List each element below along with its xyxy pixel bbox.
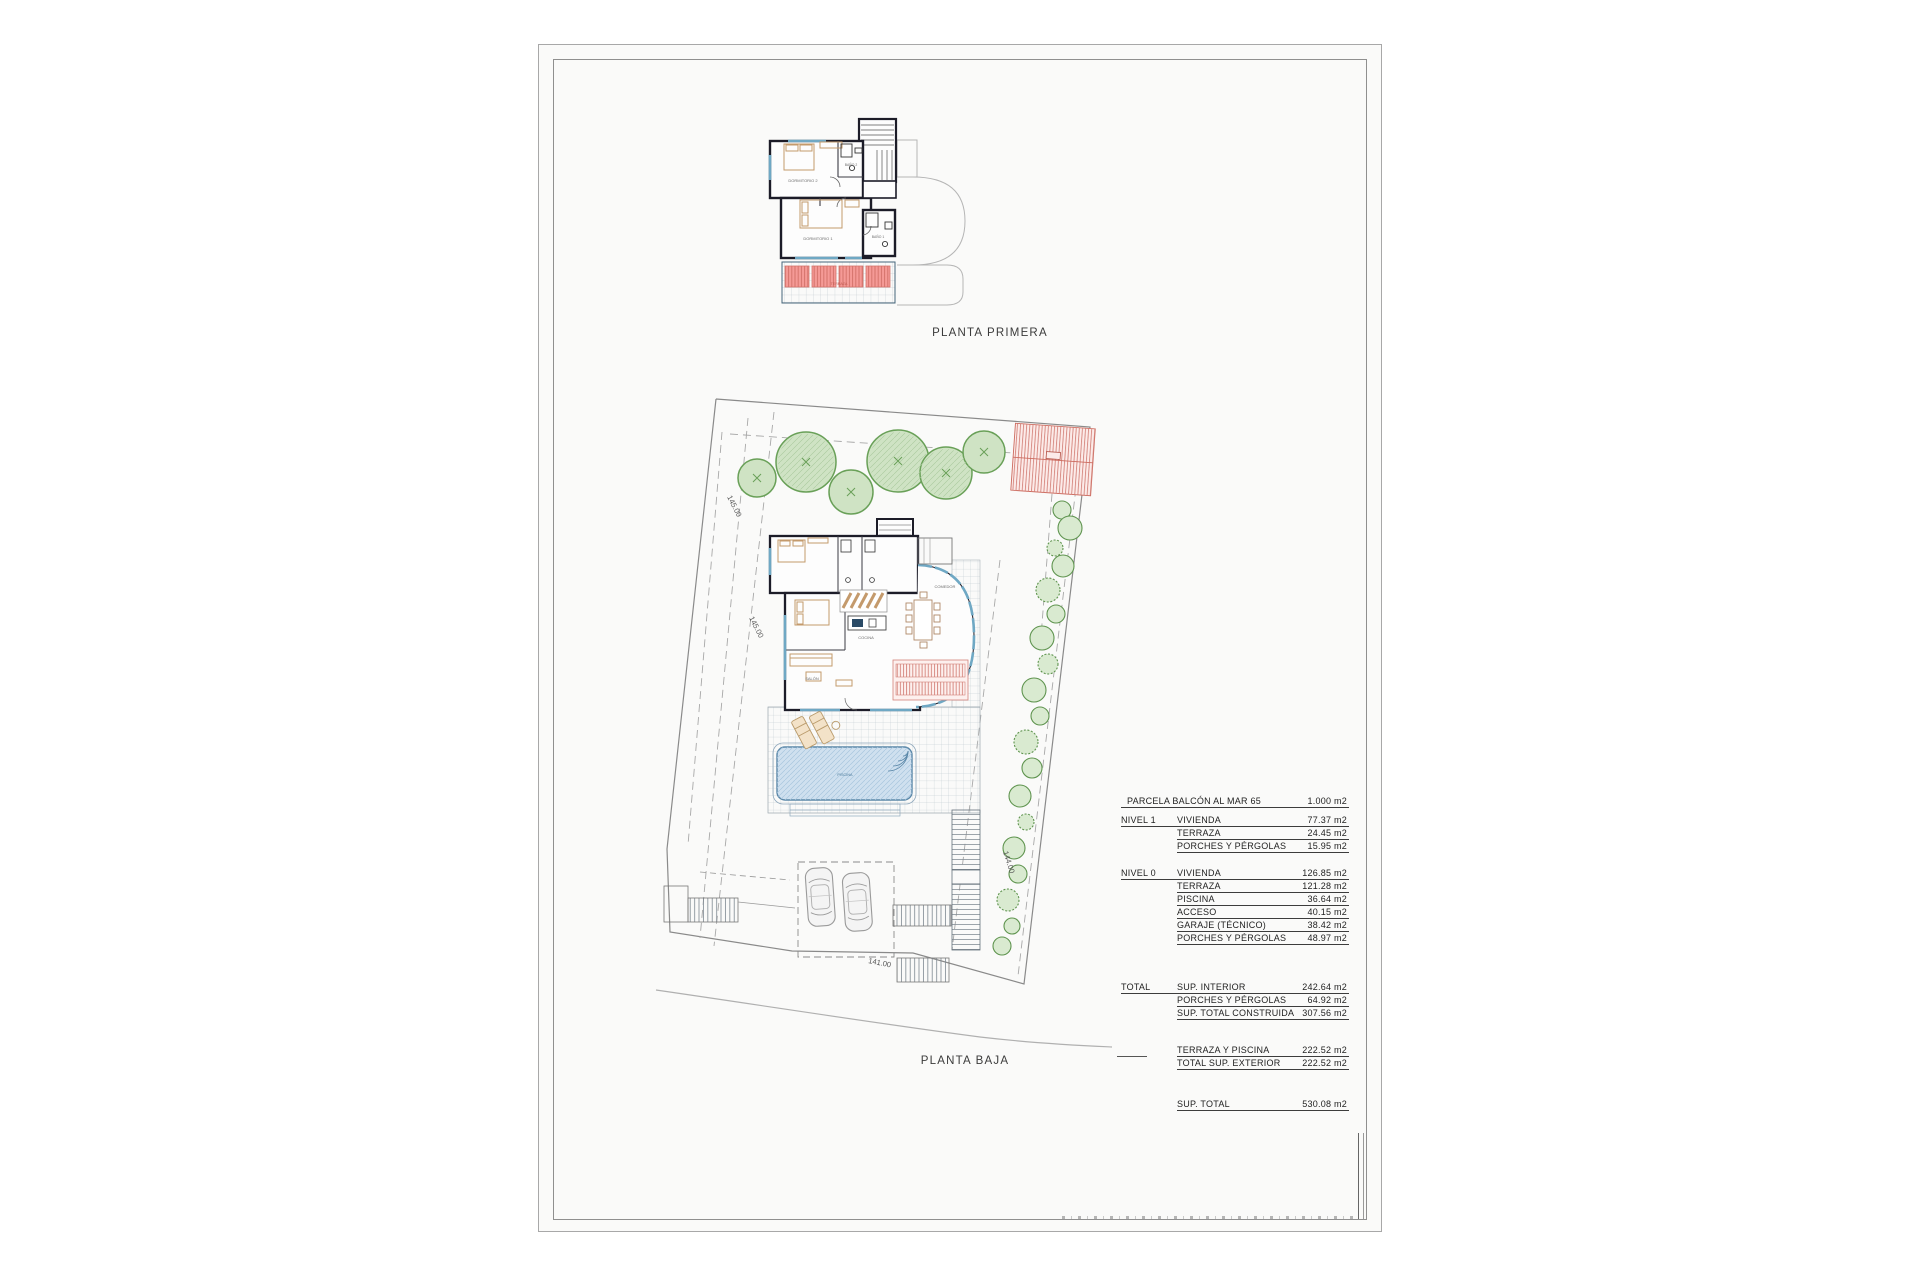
side-stairs bbox=[952, 810, 980, 950]
svg-text:BAÑO 1: BAÑO 1 bbox=[872, 234, 885, 239]
terrace-pergola: TERRAZA bbox=[782, 262, 895, 303]
illegible-fine-print bbox=[1062, 1216, 1358, 1219]
planta-primera-plan: DORMITORIO 2 BAÑO 2 DORMITORIO 1 BAÑO 1 … bbox=[755, 85, 1015, 345]
road-edge bbox=[656, 990, 1112, 1047]
svg-text:145.00: 145.00 bbox=[747, 615, 765, 640]
svg-text:SALÓN: SALÓN bbox=[805, 676, 819, 681]
table-row: SUP. TOTAL CONSTRUIDA307.56 m2 bbox=[1121, 1007, 1349, 1020]
table-row: PORCHES Y PÉRGOLAS15.95 m2 bbox=[1121, 840, 1349, 853]
plot-entrance bbox=[664, 872, 795, 922]
surface-area-table: PARCELA BALCÓN AL MAR 65 1.000 m2 NIVEL … bbox=[1121, 795, 1349, 1111]
trees bbox=[738, 430, 1005, 514]
svg-text:141.00: 141.00 bbox=[868, 956, 892, 969]
table-row: PORCHES Y PÉRGOLAS64.92 m2 bbox=[1121, 994, 1349, 1007]
planta-primera-title: PLANTA PRIMERA bbox=[920, 327, 1060, 339]
svg-text:TERRAZA: TERRAZA bbox=[831, 282, 848, 286]
table-row: TERRAZA Y PISCINA222.52 m2 bbox=[1121, 1044, 1349, 1057]
parcel-label: PARCELA BALCÓN AL MAR 65 bbox=[1127, 796, 1261, 806]
table-row: TERRAZA24.45 m2 bbox=[1121, 827, 1349, 840]
table-row: SUP. TOTAL530.08 m2 bbox=[1121, 1098, 1349, 1111]
svg-text:DORMITORIO 2: DORMITORIO 2 bbox=[788, 178, 818, 183]
road-steps bbox=[897, 958, 949, 982]
shrub-row bbox=[993, 501, 1082, 955]
planta-baja-title: PLANTA BAJA bbox=[895, 1055, 1035, 1067]
table-row: ACCESO40.15 m2 bbox=[1121, 906, 1349, 919]
svg-text:PISCINA: PISCINA bbox=[837, 773, 853, 777]
house-pergola bbox=[893, 660, 968, 700]
parcel-value: 1.000 m2 bbox=[1307, 796, 1347, 806]
planta-baja-site-plan: COMEDOR COCINA SALÓN PISCINA bbox=[655, 385, 1155, 1075]
table-row: PORCHES Y PÉRGOLAS48.97 m2 bbox=[1121, 932, 1349, 945]
table-row: GARAJE (TÉCNICO)38.42 m2 bbox=[1121, 919, 1349, 932]
slat-roof bbox=[840, 590, 887, 612]
svg-text:BAÑO 2: BAÑO 2 bbox=[845, 162, 858, 167]
table-header-row: PARCELA BALCÓN AL MAR 65 1.000 m2 bbox=[1121, 795, 1349, 808]
svg-text:DORMITORIO 1: DORMITORIO 1 bbox=[803, 236, 833, 241]
table-row: TOTAL SUP. EXTERIOR222.52 m2 bbox=[1121, 1057, 1349, 1070]
table-row: TERRAZA121.28 m2 bbox=[1121, 880, 1349, 893]
table-row: NIVEL 0 VIVIENDA126.85 m2 bbox=[1121, 867, 1349, 880]
table-row: NIVEL 1 VIVIENDA77.37 m2 bbox=[1121, 814, 1349, 827]
table-row: TOTAL SUP. INTERIOR242.64 m2 bbox=[1121, 981, 1349, 994]
driveway bbox=[798, 862, 951, 957]
ground-floor-ghost-outline bbox=[897, 140, 965, 305]
svg-text:COCINA: COCINA bbox=[858, 635, 874, 640]
title-block-edge bbox=[1358, 1133, 1364, 1219]
stair-tower bbox=[859, 119, 896, 182]
page: { "sheet": { "planta_primera_label": "PL… bbox=[0, 0, 1920, 1280]
carport-pergola bbox=[1011, 423, 1095, 495]
table-row: PISCINA36.64 m2 bbox=[1121, 893, 1349, 906]
svg-text:COMEDOR: COMEDOR bbox=[935, 584, 956, 589]
